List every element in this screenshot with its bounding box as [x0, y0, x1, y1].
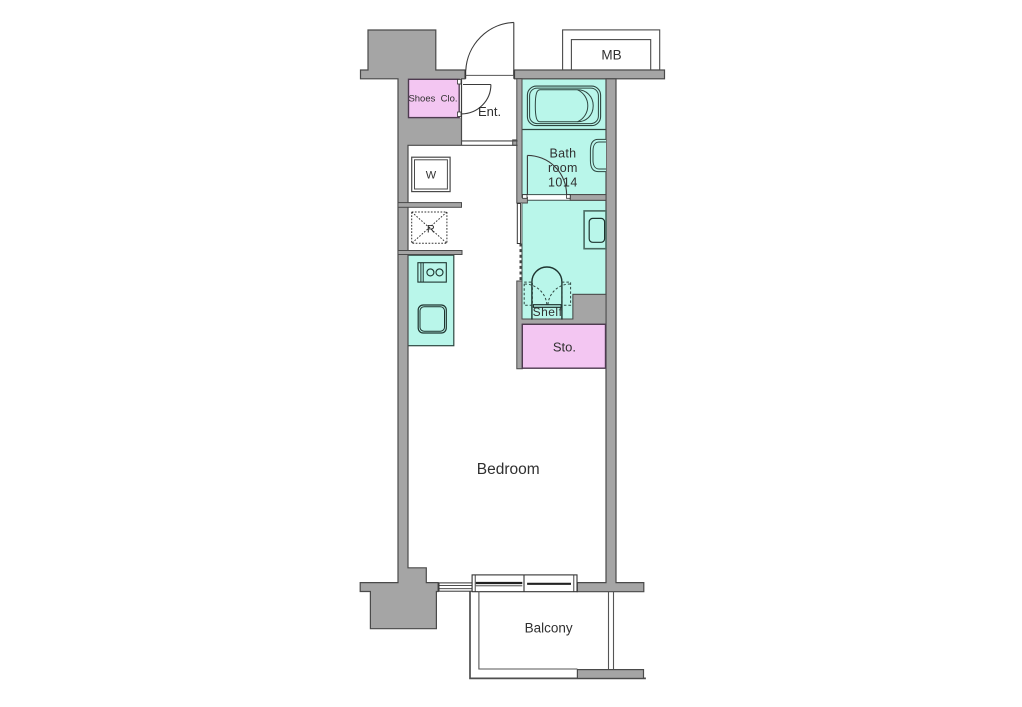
svg-text:Shelf: Shelf [533, 305, 563, 319]
svg-text:Sto.: Sto. [553, 339, 576, 354]
svg-text:room: room [548, 161, 578, 175]
svg-text:Shoes Clo.: Shoes Clo. [408, 94, 457, 105]
svg-text:Bath: Bath [549, 147, 576, 161]
svg-text:Bedroom: Bedroom [477, 461, 540, 478]
svg-text:Ent.: Ent. [478, 104, 501, 119]
svg-text:Balcony: Balcony [525, 620, 573, 635]
svg-text:MB: MB [601, 48, 621, 63]
svg-text:R: R [427, 223, 435, 235]
svg-text:W: W [426, 169, 437, 181]
